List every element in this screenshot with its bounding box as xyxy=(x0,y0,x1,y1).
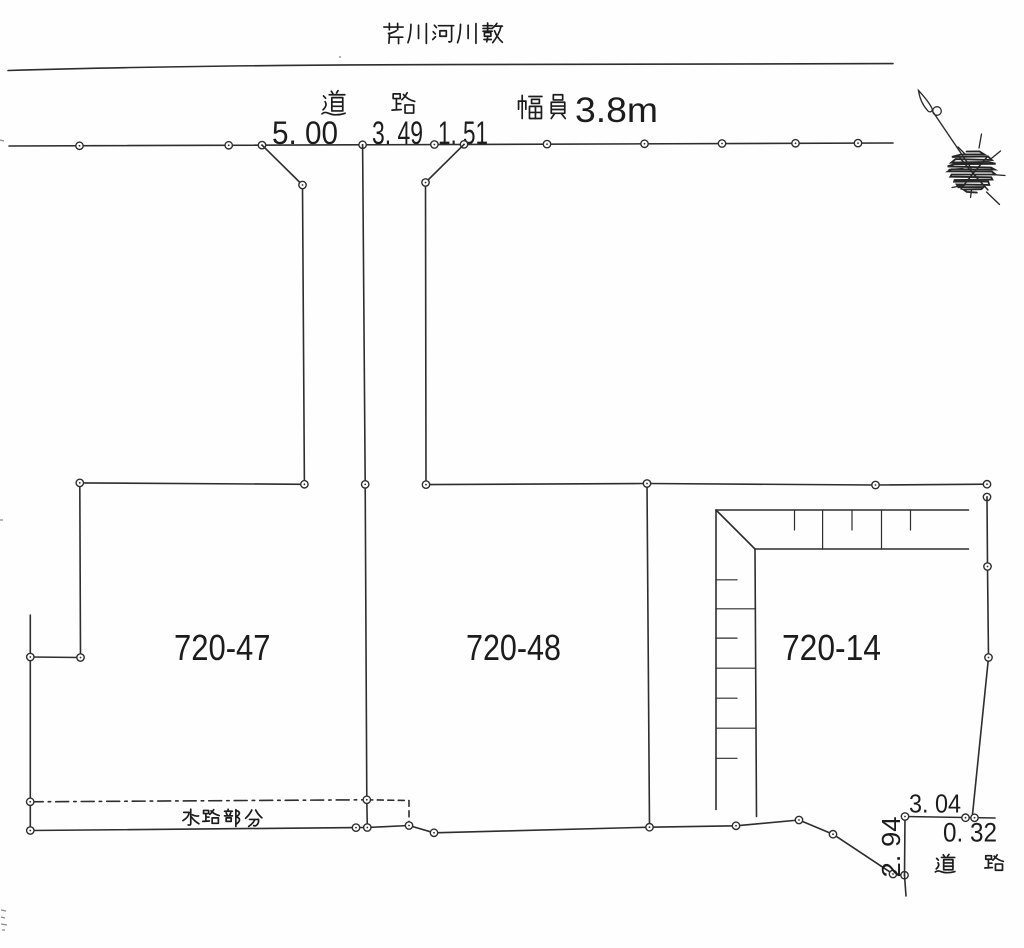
svg-text:0. 32: 0. 32 xyxy=(943,818,997,848)
svg-text:3.8m: 3.8m xyxy=(575,91,658,130)
svg-text:3. 04: 3. 04 xyxy=(909,789,961,819)
svg-text:720-47: 720-47 xyxy=(174,627,271,668)
svg-text:720-48: 720-48 xyxy=(466,627,561,668)
svg-text:3. 49: 3. 49 xyxy=(372,115,423,151)
svg-text:2. 94: 2. 94 xyxy=(876,817,906,878)
svg-text:720-14: 720-14 xyxy=(782,627,881,668)
